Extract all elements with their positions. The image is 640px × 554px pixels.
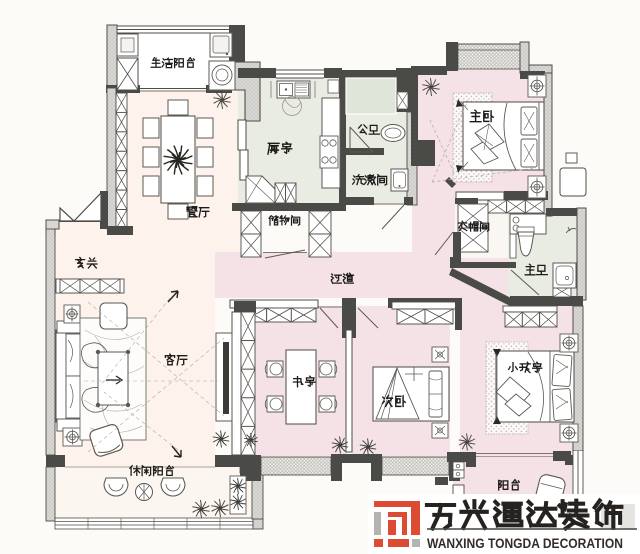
svg-text:WANXING TONGDA DECORATION: WANXING TONGDA DECORATION (427, 536, 623, 551)
